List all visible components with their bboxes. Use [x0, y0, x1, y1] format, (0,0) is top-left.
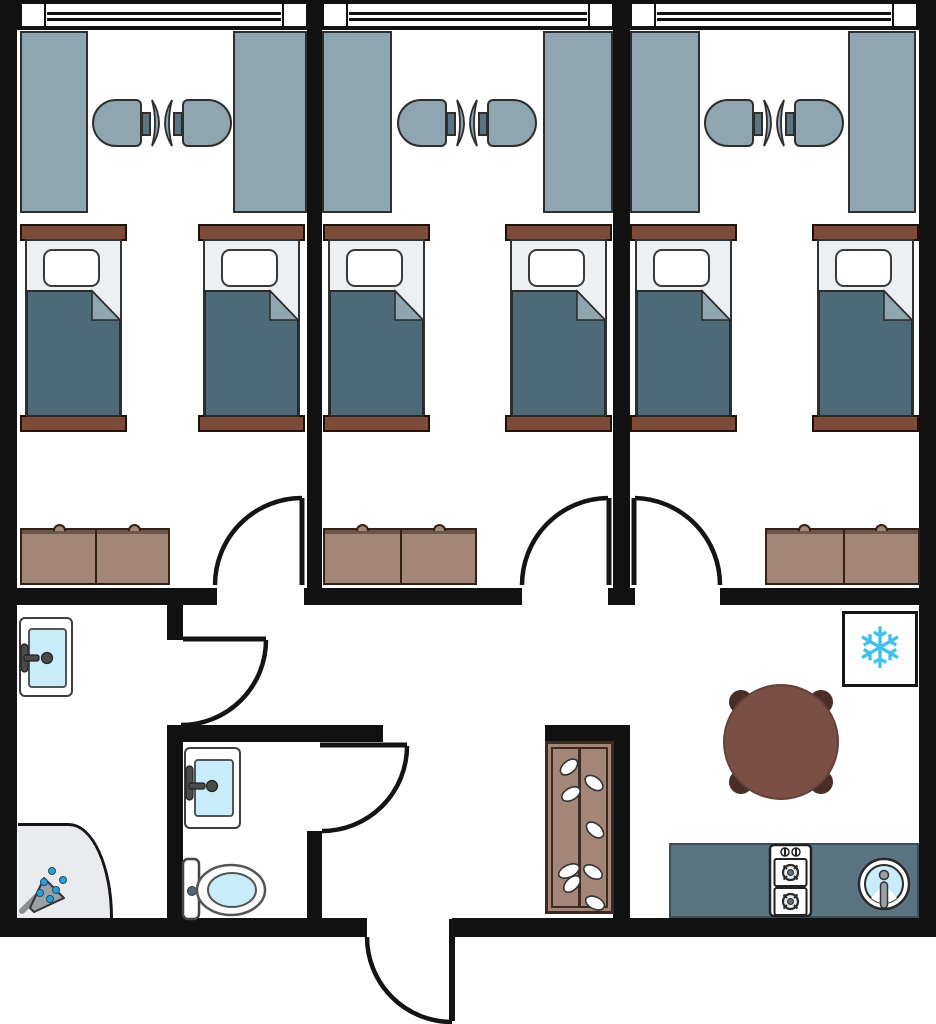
outer-wall-left [0, 0, 17, 937]
bed-pillow [346, 249, 403, 287]
snowflake-icon: ❄ [856, 621, 904, 678]
chair-back [152, 100, 159, 146]
bed-footboard [630, 415, 737, 432]
window-glass [657, 12, 891, 21]
outer-wall-bottom-right [452, 918, 936, 937]
toilet [183, 859, 265, 919]
bed-blankets [27, 291, 912, 416]
dresser-handle [128, 524, 141, 531]
shoe-cabinet [545, 741, 614, 914]
b3-chair-left-seat [704, 99, 754, 147]
partition-bedroom1-2 [307, 28, 322, 605]
refrigerator: ❄ [842, 611, 918, 687]
window-jamb [654, 4, 656, 26]
b3-desk-right [848, 31, 916, 213]
middle-wall-c [608, 588, 635, 605]
b2-chair-left-seat [397, 99, 447, 147]
dining-table [723, 684, 839, 800]
chair-back [470, 100, 477, 146]
floor-plan-canvas: ❄ [0, 0, 936, 1024]
b2-dresser [323, 528, 477, 585]
dresser-handle [356, 524, 369, 531]
bedroom2-door-arc [522, 498, 608, 585]
corridor-sink-basin [28, 628, 67, 688]
bed-pillow [221, 249, 278, 287]
middle-wall-d [720, 588, 936, 605]
b2-chair-right-seat [487, 99, 537, 147]
corridor-door-arc [181, 640, 266, 725]
bed-pillow [835, 249, 892, 287]
b3-chair-left-connector [753, 112, 763, 136]
entry-door-arc [367, 937, 452, 1022]
bed-footboard [812, 415, 919, 432]
chair-back [457, 100, 464, 146]
dresser-divider [95, 530, 97, 583]
bed-footboard [505, 415, 612, 432]
outer-wall-right [919, 0, 936, 937]
toilet-bowl [197, 865, 265, 915]
dresser-handle [433, 524, 446, 531]
b2-desk-right [543, 31, 613, 213]
b2-desk-left [322, 31, 392, 213]
b3-dresser [765, 528, 920, 585]
bathroom-sink-basin [194, 759, 234, 817]
toilet-bowl-inner [208, 873, 256, 907]
b1-dresser [20, 528, 170, 585]
dresser-divider [400, 530, 402, 583]
b1-chair-left-seat [92, 99, 142, 147]
b1-desk-left [20, 31, 88, 213]
toilet-tank [183, 859, 199, 919]
bathroom-door-arc [322, 746, 407, 831]
dresser-handle [798, 524, 811, 531]
bedroom3-door-arc [635, 498, 720, 585]
b2-chair-left-connector [446, 112, 456, 136]
shoe-cabinet-divider [578, 747, 581, 908]
chair-back [764, 100, 771, 146]
window-bedroom-3 [630, 2, 918, 28]
window-jamb [346, 4, 348, 26]
middle-wall-a [0, 588, 217, 605]
kitchen-counter [669, 843, 919, 918]
bed-pillow [653, 249, 710, 287]
kitchen-divider-wall [613, 725, 630, 918]
bathroom-wall-left [167, 725, 183, 918]
bed-footboard [323, 415, 430, 432]
b1-desk-right [233, 31, 307, 213]
chair-back [165, 100, 172, 146]
window-bedroom-1 [20, 2, 308, 28]
b1-chair-right-seat [182, 99, 232, 147]
bathroom-wall-right-stub [307, 831, 322, 918]
bed-footboard [20, 415, 127, 432]
dresser-handle [53, 524, 66, 531]
window-jamb [892, 4, 894, 26]
middle-wall-b [304, 588, 522, 605]
window-jamb [282, 4, 284, 26]
corridor-wall-stub [167, 605, 183, 640]
bathroom-wall-top [167, 725, 383, 742]
chair-back [777, 100, 784, 146]
window-glass [349, 12, 587, 21]
corner-shower [18, 823, 113, 918]
bed-pillow [43, 249, 100, 287]
dresser-divider [843, 530, 845, 583]
window-jamb [44, 4, 46, 26]
window-bedroom-2 [322, 2, 614, 28]
b1-chair-left-connector [141, 112, 151, 136]
bedroom1-door-arc [215, 498, 302, 585]
b3-desk-left [630, 31, 700, 213]
bed-pillow [528, 249, 585, 287]
partition-bedroom2-3 [613, 28, 630, 605]
window-glass [47, 12, 281, 21]
window-jamb [588, 4, 590, 26]
toilet-button [188, 887, 197, 896]
outer-wall-bottom-left [0, 918, 367, 937]
dresser-handle [875, 524, 888, 531]
b3-chair-right-seat [794, 99, 844, 147]
bed-footboard [198, 415, 305, 432]
